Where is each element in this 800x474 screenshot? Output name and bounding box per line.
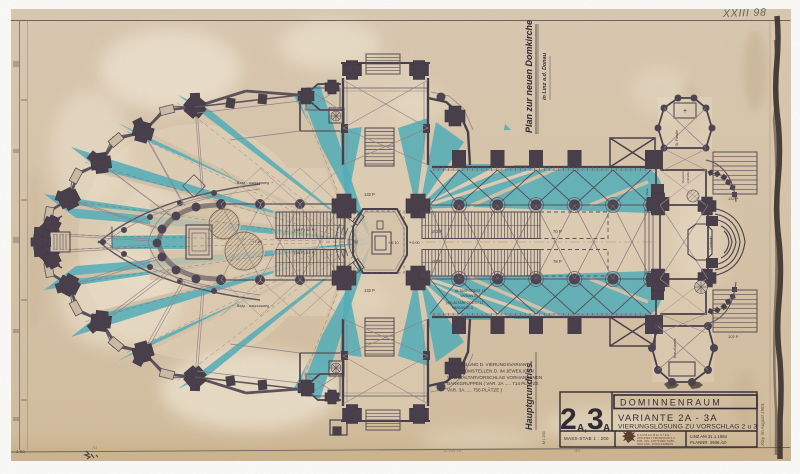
svg-text:1 5a: 1 5a [16,449,25,454]
svg-text:VARIANTE 3: VARIANTE 3 [452,306,473,310]
svg-text:Vierzehn-: Vierzehn- [681,171,685,184]
svg-text:11 204 16: 11 204 16 [443,448,462,453]
svg-text:A,: A, [577,423,587,434]
svg-text:Turmhalle: Turmhalle [709,236,713,250]
svg-text:132 P: 132 P [364,192,375,197]
svg-text:DURCH UMSTELLEN D. IM JEWEILIG: DURCH UMSTELLEN D. IM JEWEILIGEN [447,368,534,373]
svg-text:in Linz a.d. Donau: in Linz a.d. Donau [542,52,548,100]
svg-text:ALTARPODEST LT.: ALTARPODEST LT. [455,289,486,293]
svg-text:Plan zur neuen Domkirche: Plan zur neuen Domkirche [524,20,534,133]
svg-text:DOMINNENRAUM: DOMINNENRAUM [620,398,722,408]
svg-text:+ 0.10: + 0.10 [388,241,399,245]
svg-text:(48 P) 42 P: (48 P) 42 P [294,227,315,232]
svg-text:LINZ AM 31.1.1984: LINZ AM 31.1.1984 [690,434,728,439]
svg-text:182 P: 182 P [431,259,442,264]
svg-text:Pieta: Pieta [645,188,649,195]
svg-text:+7.60: +7.60 [252,239,263,244]
svg-text:M 1:200: M 1:200 [542,431,546,444]
svg-text:St. Familie: St. Familie [675,130,679,146]
svg-text:+: + [683,108,687,115]
svg-text:BANKGRUPPEN ( VAR. 2A ..... 7: BANKGRUPPEN ( VAR. 2A ..... 714 PLÄTZE [447,380,539,386]
svg-text:Marienkapelle: Marienkapelle [110,226,114,247]
svg-text:BESTUHLUNG D. VIERUNGSVARIANTE: BESTUHLUNG D. VIERUNGSVARIANTE [447,362,532,367]
svg-text:2: 2 [560,403,577,436]
svg-text:163 P: 163 P [431,229,442,234]
svg-text:3: 3 [587,403,604,436]
svg-text:111: 111 [92,446,97,450]
svg-text:VARIANTE 2A - 3A: VARIANTE 2A - 3A [618,413,718,424]
svg-text:Xlay, im August 1984.: Xlay, im August 1984. [760,403,765,447]
svg-text:XXIII 98: XXIII 98 [722,6,767,20]
svg-text:PLANNR. 3936 /10: PLANNR. 3936 /10 [690,440,727,445]
svg-text:+ 0.00: + 0.00 [409,241,420,245]
svg-text:VARIANTE 2: VARIANTE 2 [460,294,481,298]
svg-text:nothelfer: nothelfer [686,171,690,183]
svg-text:Kreuzkapelle: Kreuzkapelle [673,338,677,358]
svg-text:45.: 45. [575,448,581,453]
svg-text:A: A [603,423,610,434]
svg-text:102 P: 102 P [728,334,739,339]
svg-text:(34 P) 44 P: (34 P) 44 P [294,250,315,255]
svg-text:MASS-STAB 1 : 200: MASS-STAB 1 : 200 [564,436,609,441]
svg-text:(43) ALTARPODEST LT.: (43) ALTARPODEST LT. [446,301,485,305]
svg-text:VOLKSALTARVORSCHLAG VORHANDEN: VOLKSALTARVORSCHLAG VORHANDENEN [447,375,542,380]
svg-text:4040 LINZ - PÖSTLINGBERG: 4040 LINZ - PÖSTLINGBERG [637,442,673,446]
svg-text:132 P: 132 P [728,196,739,201]
svg-text:← Bankreihen · Weg →: ← Bankreihen · Weg → [232,181,274,186]
svg-text:70 P: 70 P [553,229,562,234]
svg-text:78 P: 78 P [553,259,562,264]
svg-text:VAR. 3A ..... 756 PLÄTZE ): VAR. 3A ..... 756 PLÄTZE ) [447,387,503,393]
svg-text:132 P: 132 P [364,288,375,293]
svg-text:← Bankreihen · Weg →: ← Bankreihen · Weg → [232,304,274,309]
svg-text:VIERUNGSLÖSUNG ZU VORSCHLAG 2: VIERUNGSLÖSUNG ZU VORSCHLAG 2 u 3 [618,423,757,431]
